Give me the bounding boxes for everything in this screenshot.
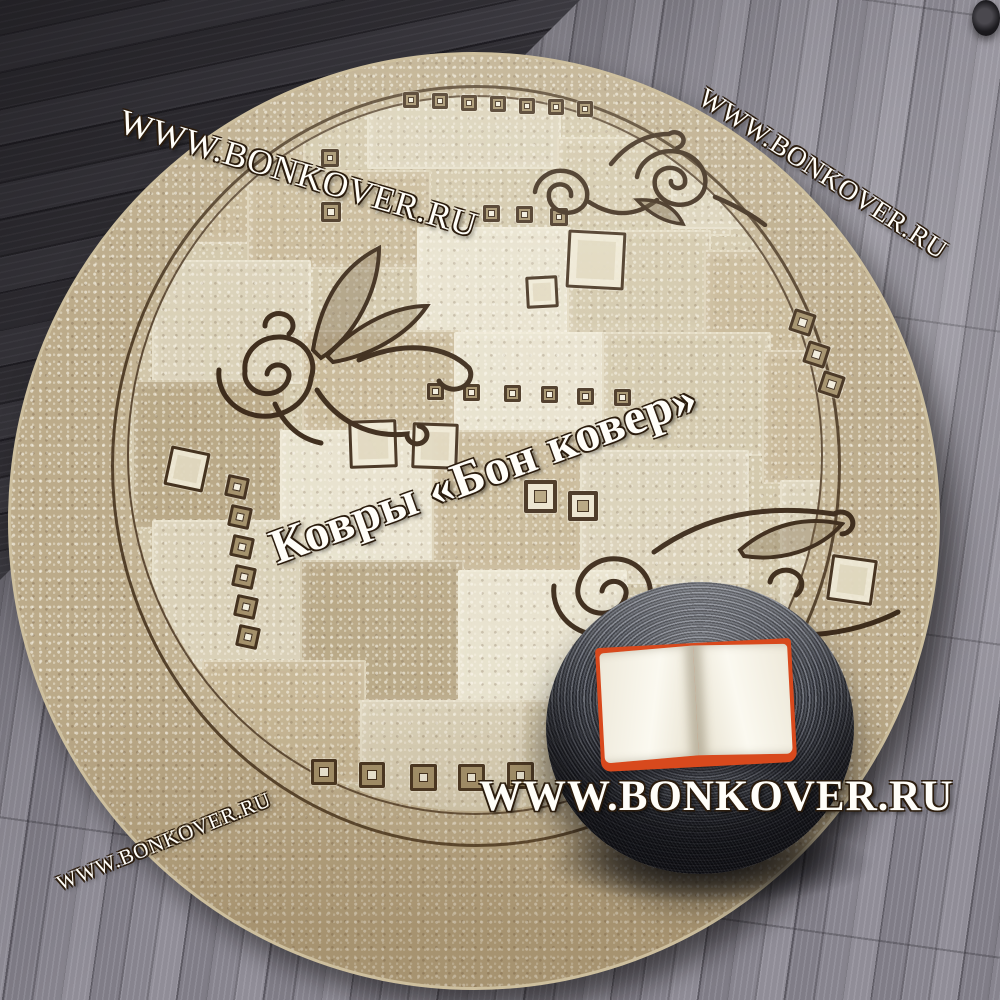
- book-page-right: [693, 644, 793, 755]
- book-page-left: [599, 645, 698, 763]
- product-photo-scene: WWW.BONKOVER.RU WWW.BONKOVER.RU Ковры «Б…: [0, 0, 1000, 1000]
- watermark-bottom-center: WWW.BONKOVER.RU: [479, 772, 954, 821]
- furniture-wheel: [972, 0, 1000, 36]
- open-book: [599, 641, 793, 765]
